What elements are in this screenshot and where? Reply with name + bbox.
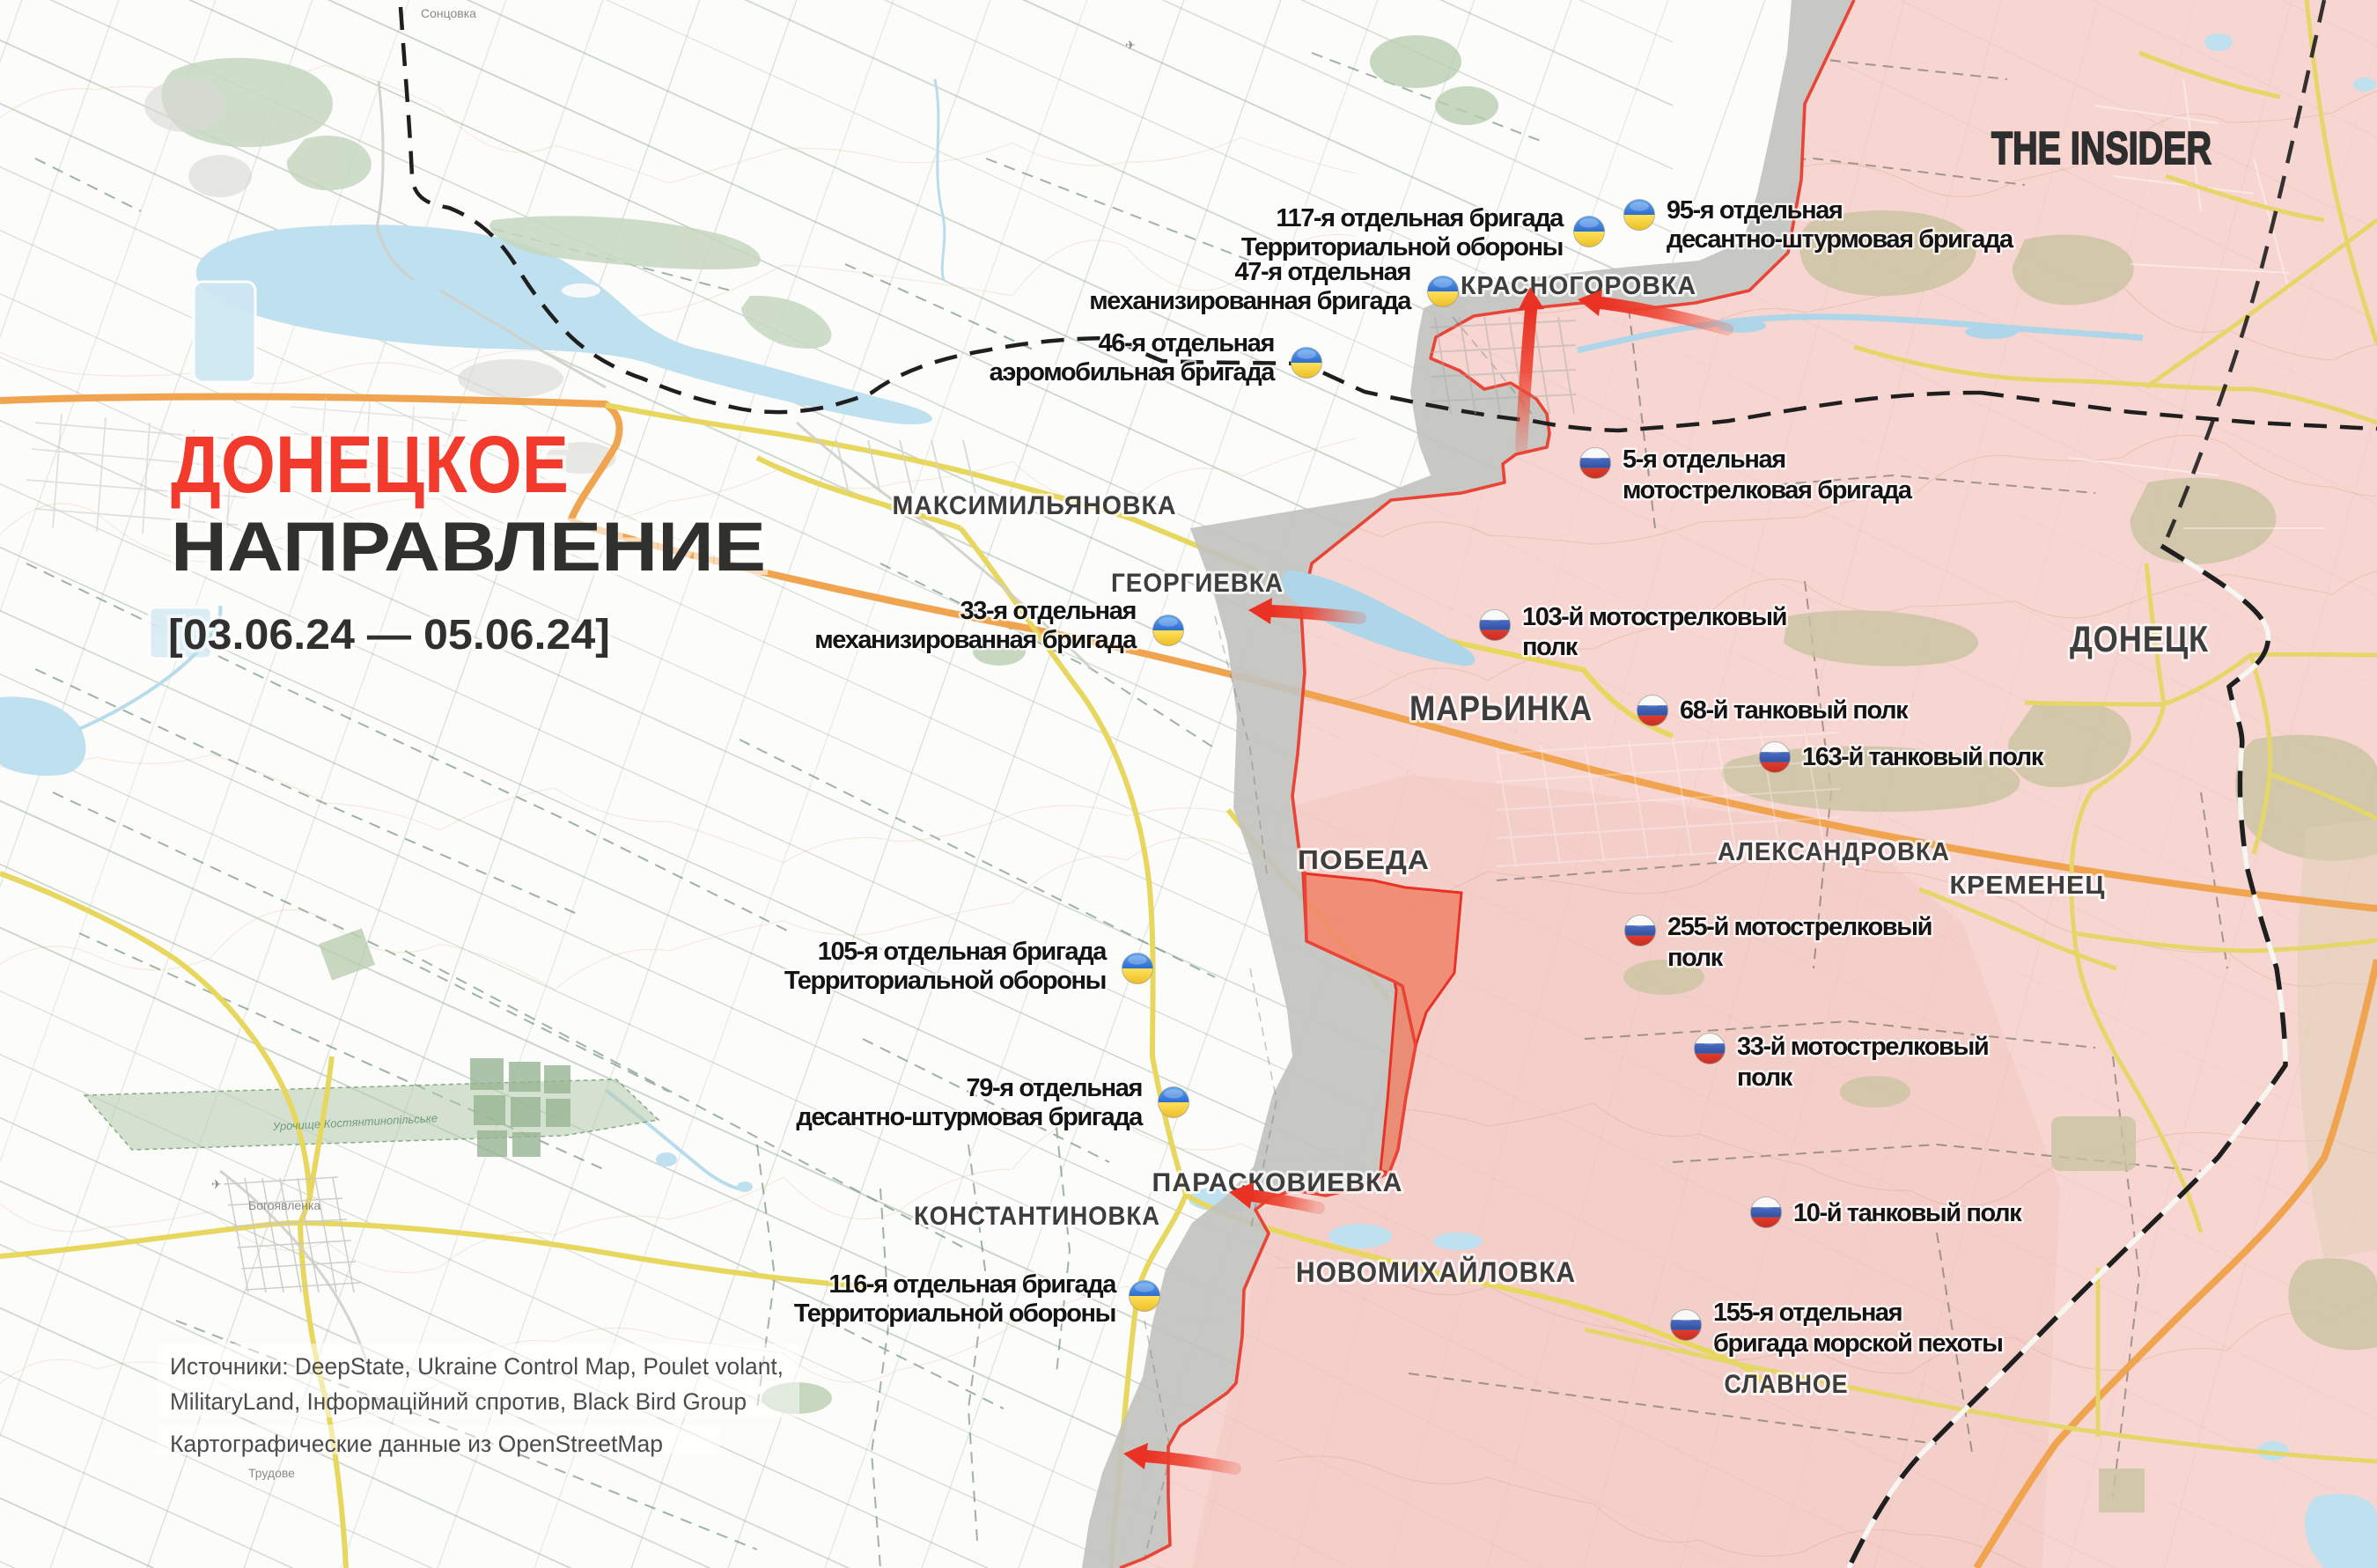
svg-text:5-я отдельная: 5-я отдельная — [1623, 445, 1785, 474]
svg-text:ПОБЕДА: ПОБЕДА — [1298, 844, 1430, 875]
svg-text:Богоявленка: Богоявленка — [248, 1198, 320, 1212]
svg-text:аэромобильная бригада: аэромобильная бригада — [990, 358, 1277, 386]
svg-text:Источники: DeepState, Ukraine: Источники: DeepState, Ukraine Control Ma… — [170, 1353, 784, 1380]
svg-text:мотострелковая бригада: мотострелковая бригада — [1623, 476, 1913, 504]
svg-text:[03.06.24 — 05.06.24]: [03.06.24 — 05.06.24] — [168, 612, 610, 659]
svg-text:33-я отдельная: 33-я отдельная — [960, 597, 1136, 625]
svg-text:79-я отдельная: 79-я отдельная — [967, 1074, 1142, 1102]
svg-text:АЛЕКСАНДРОВКА: АЛЕКСАНДРОВКА — [1718, 838, 1950, 866]
svg-text:КРЕМЕНЕЦ: КРЕМЕНЕЦ — [1950, 872, 2106, 900]
svg-text:КОНСТАНТИНОВКА: КОНСТАНТИНОВКА — [914, 1202, 1160, 1231]
svg-text:Территориальной обороны: Территориальной обороны — [784, 967, 1106, 995]
svg-text:THE INSIDER: THE INSIDER — [1991, 123, 2211, 174]
svg-text:117-я отдельная бригада: 117-я отдельная бригада — [1276, 204, 1564, 232]
svg-text:полк: полк — [1522, 633, 1579, 661]
svg-text:СЛАВНОЕ: СЛАВНОЕ — [1725, 1370, 1849, 1399]
svg-text:десантно-штурмовая бригада: десантно-штурмовая бригада — [796, 1103, 1144, 1131]
svg-text:КРАСНОГОРОВКА: КРАСНОГОРОВКА — [1461, 272, 1696, 300]
svg-text:95-я отдельная: 95-я отдельная — [1667, 196, 1842, 225]
svg-text:✈: ✈ — [1125, 38, 1136, 52]
svg-text:десантно-штурмовая бригада: десантно-штурмовая бригада — [1667, 225, 2014, 254]
svg-text:Сонцовка: Сонцовка — [421, 6, 476, 20]
svg-text:Трудове: Трудове — [248, 1466, 295, 1480]
svg-text:механизированная бригада: механизированная бригада — [1089, 287, 1412, 315]
svg-text:✈: ✈ — [211, 1177, 222, 1191]
svg-text:ПАРАСКОВИЕВКА: ПАРАСКОВИЕВКА — [1152, 1168, 1403, 1197]
svg-text:Картографические данные из Ope: Картографические данные из OpenStreetMap — [170, 1431, 663, 1457]
svg-text:НОВОМИХАЙЛОВКА: НОВОМИХАЙЛОВКА — [1296, 1256, 1576, 1288]
svg-text:46-я отдельная: 46-я отдельная — [1099, 329, 1274, 357]
svg-text:MilitaryLand, Інформаційний сп: MilitaryLand, Інформаційний спротив, Bla… — [170, 1388, 747, 1415]
svg-text:155-я отдельная: 155-я отдельная — [1713, 1299, 1902, 1327]
svg-text:Территориальной обороны: Территориальной обороны — [794, 1299, 1115, 1328]
svg-text:10-й танковый полк: 10-й танковый полк — [1793, 1199, 2022, 1227]
svg-text:МАРЬИНКА: МАРЬИНКА — [1409, 689, 1593, 728]
svg-text:255-й мотострелковый: 255-й мотострелковый — [1667, 913, 1932, 941]
svg-text:116-я отдельная бригада: 116-я отдельная бригада — [828, 1270, 1117, 1299]
svg-text:механизированная бригада: механизированная бригада — [814, 626, 1137, 654]
svg-text:47-я отдельная: 47-я отдельная — [1235, 258, 1410, 286]
svg-text:бригада морской пехоты: бригада морской пехоты — [1713, 1329, 2002, 1358]
svg-text:ДОНЕЦК: ДОНЕЦК — [2070, 618, 2209, 659]
svg-text:ДОНЕЦКОЕ: ДОНЕЦКОЕ — [171, 420, 569, 510]
svg-text:полк: полк — [1667, 944, 1724, 972]
svg-text:НАПРАВЛЕНИЕ: НАПРАВЛЕНИЕ — [171, 507, 766, 585]
svg-text:103-й мотострелковый: 103-й мотострелковый — [1522, 603, 1786, 631]
svg-text:68-й танковый полк: 68-й танковый полк — [1680, 696, 1909, 725]
svg-text:105-я отдельная бригада: 105-я отдельная бригада — [818, 938, 1108, 966]
svg-text:ГЕОРГИЕВКА: ГЕОРГИЕВКА — [1111, 569, 1284, 598]
svg-text:33-й мотострелковый: 33-й мотострелковый — [1737, 1033, 1988, 1061]
svg-text:163-й танковый полк: 163-й танковый полк — [1802, 743, 2044, 771]
svg-text:МАКСИМИЛЬЯНОВКА: МАКСИМИЛЬЯНОВКА — [893, 491, 1177, 520]
svg-text:полк: полк — [1737, 1064, 1793, 1092]
